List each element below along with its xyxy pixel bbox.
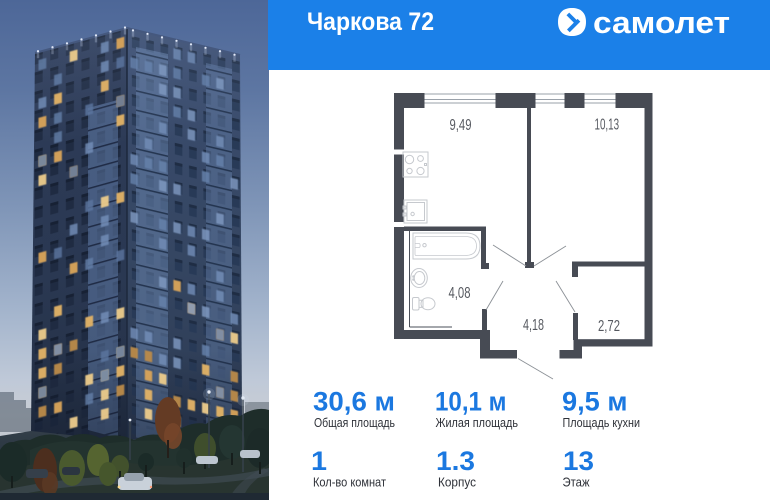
svg-text:самолет: самолет (593, 5, 730, 40)
svg-text:Жилая площадь: Жилая площадь (436, 416, 519, 430)
svg-text:2,72: 2,72 (598, 318, 620, 335)
svg-text:10,13: 10,13 (595, 116, 620, 133)
svg-text:Общая площадь: Общая площадь (314, 416, 395, 430)
svg-text:1.3: 1.3 (436, 446, 475, 476)
svg-text:Площадь кухни: Площадь кухни (563, 416, 641, 430)
svg-text:4,18: 4,18 (523, 317, 544, 334)
svg-text:Чаркова 72: Чаркова 72 (307, 8, 434, 36)
svg-text:9,49: 9,49 (450, 117, 472, 134)
svg-text:13: 13 (563, 446, 594, 476)
svg-text:30,6 м: 30,6 м (313, 387, 395, 417)
svg-text:Этаж: Этаж (563, 476, 591, 490)
svg-text:1: 1 (311, 446, 327, 476)
svg-text:Корпус: Корпус (438, 476, 476, 490)
svg-text:4,08: 4,08 (449, 285, 471, 302)
svg-text:10,1 м: 10,1 м (435, 387, 507, 417)
svg-text:Кол-во комнат: Кол-во комнат (313, 476, 386, 490)
svg-text:9,5 м: 9,5 м (562, 387, 628, 417)
